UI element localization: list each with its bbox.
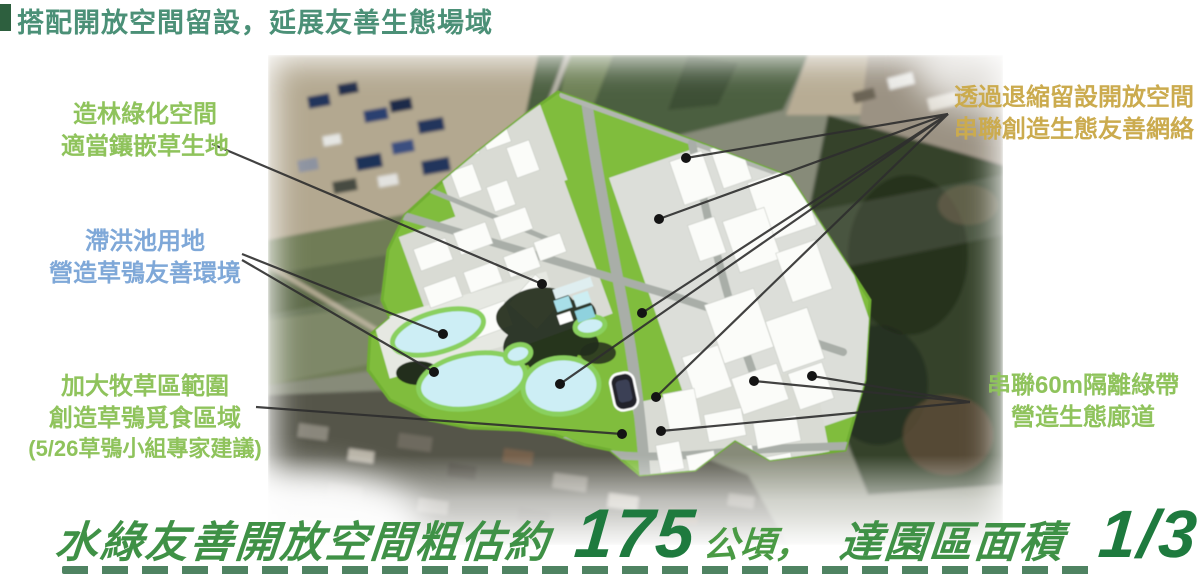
banner-area-unit: 公頃， (701, 516, 814, 568)
annotation-line: 適當鑲嵌草生地 (30, 131, 260, 163)
annotation-setback-open-space: 透過退縮留設開放空間 串聯創造生態友善網絡 (950, 82, 1198, 145)
annotation-afforestation: 造林綠化空間 適當鑲嵌草生地 (30, 99, 260, 162)
annotation-line: 營造草鴞友善環境 (30, 258, 260, 290)
summary-banner: 水綠友善開放空間粗估約 175 公頃， 達園區面積 1/3 (53, 494, 1200, 573)
annotation-line: 串聯60m隔離綠帶 (968, 370, 1198, 402)
annotation-line: 透過退縮留設開放空間 (950, 82, 1198, 114)
annotation-line: 創造草鴞覓食區域 (0, 403, 290, 435)
banner-area-value: 175 (572, 494, 700, 573)
banner-prefix: 水綠友善開放空間粗估約 (53, 508, 553, 570)
banner-middle: 達園區面積 (837, 508, 1067, 570)
annotation-detention-pond: 滯洪池用地 營造草鴞友善環境 (30, 226, 260, 289)
annotation-line: 營造生態廊道 (968, 402, 1198, 434)
annotation-line: 造林綠化空間 (30, 99, 260, 131)
title-bullet-square (0, 4, 11, 31)
annotation-line: 滯洪池用地 (30, 226, 260, 258)
annotation-isolation-greenbelt: 串聯60m隔離綠帶 營造生態廊道 (968, 370, 1198, 433)
banner-fraction: 1/3 (1096, 496, 1200, 573)
slide: { "title": { "text": "搭配開放空間留設，延展友善生態場域"… (0, 0, 1200, 574)
cutoff-text-strip (62, 566, 1102, 574)
annotation-line: 加大牧草區範圍 (0, 371, 290, 403)
page-title: 搭配開放空間留設，延展友善生態場域 (17, 1, 493, 40)
annotation-line: 串聯創造生態友善網絡 (950, 114, 1198, 146)
annotation-pasture-area: 加大牧草區範圍 創造草鴞覓食區域 (5/26草鴞小組專家建議) (0, 371, 290, 463)
annotation-line: (5/26草鴞小組專家建議) (0, 434, 290, 463)
